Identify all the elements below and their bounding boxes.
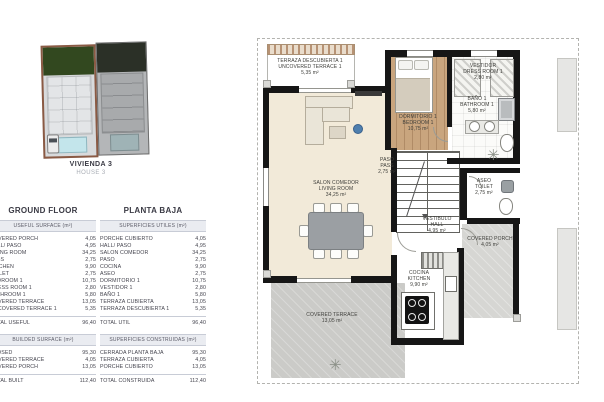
- table-row: CERRADA PLANTA BAJA95,30: [100, 350, 206, 357]
- row-label: BAÑO 1: [100, 292, 120, 299]
- toilet: [500, 134, 514, 152]
- column-marker: [347, 80, 355, 88]
- dining-chair: [330, 249, 342, 259]
- total-label: TOTAL CONSTRUIDA: [100, 377, 154, 386]
- row-value: 5,35: [85, 306, 96, 313]
- row-label: COVERED PORCH: [0, 364, 38, 371]
- pool-dim: [110, 134, 140, 151]
- table-row: BEDROOM 110,75: [0, 278, 96, 285]
- table-row: BATHROOM 15,80: [0, 292, 96, 299]
- plot-house3-highlighted: [41, 44, 99, 158]
- table-row: COVERED TERRACE4,05: [0, 357, 96, 364]
- room-area: 2,75 m²: [467, 190, 501, 196]
- row-label: COVERED TERRACE: [0, 299, 44, 306]
- plot-neighbor-dimmed: [96, 41, 150, 155]
- row-value: 10,75: [82, 278, 96, 285]
- column-marker: [263, 80, 271, 88]
- built-rows: CERRADA PLANTA BAJA95,30 TERRAZA CUBIERT…: [100, 350, 206, 371]
- row-value: 2,75: [195, 271, 206, 278]
- row-label: SALON COMEDOR: [100, 250, 148, 257]
- row-label: PASO: [100, 257, 115, 264]
- room-area: 34,25 m²: [296, 192, 376, 198]
- room-area: 9,90 m²: [397, 282, 441, 288]
- pillow: [414, 60, 429, 70]
- plant-icon: ✳: [329, 358, 342, 373]
- row-value: 5,80: [195, 292, 206, 299]
- row-value: 13,05: [192, 299, 206, 306]
- row-label: COVERED TERRACE: [0, 357, 44, 364]
- row-value: 2,75: [85, 271, 96, 278]
- row-value: 2,75: [85, 257, 96, 264]
- sink: [484, 121, 495, 132]
- row-value: 4,05: [85, 236, 96, 243]
- house-roofplan-dim: [100, 72, 145, 133]
- room-area: 2,75 m²: [365, 169, 409, 175]
- row-value: 13,05: [192, 364, 206, 371]
- useful-rows: PORCHE CUBIERTO4,05 HALL/ PASO4,95 SALON…: [100, 236, 206, 313]
- wall-segment: [513, 218, 519, 320]
- house-roofplan: [46, 76, 92, 136]
- built-rows: CLOSED95,30 COVERED TERRACE4,05 COVERED …: [0, 350, 96, 371]
- row-label: BEDROOM 1: [0, 278, 23, 285]
- row-value: 5,80: [85, 292, 96, 299]
- dining-chair: [313, 249, 325, 259]
- dining-table: [308, 212, 364, 250]
- table-row: DORMITORIO 110,75: [100, 278, 206, 285]
- dining-chair: [347, 249, 359, 259]
- divider: [100, 374, 206, 375]
- row-label: HALL/ PASO: [100, 243, 132, 250]
- ground-floor-table: GROUND FLOOR USEFUL SURFACE (m²) COVERED…: [0, 206, 96, 386]
- wall-segment: [385, 50, 520, 57]
- toilet: [499, 198, 513, 215]
- table-title: GROUND FLOOR: [0, 206, 96, 215]
- table-row: COCINA9,90: [100, 264, 206, 271]
- window: [407, 50, 433, 57]
- pergola-slats: [267, 44, 355, 55]
- row-value: 4,05: [195, 236, 206, 243]
- row-value: 9,90: [195, 264, 206, 271]
- total-value: 112,40: [80, 377, 96, 386]
- row-value: 34,25: [192, 250, 206, 257]
- window: [263, 168, 269, 206]
- row-value: 13,05: [82, 364, 96, 371]
- room-area: 13,05 m²: [292, 318, 372, 324]
- row-value: 4,95: [85, 243, 96, 250]
- caption-vivienda: VIVIENDA 3: [18, 161, 164, 169]
- row-value: 95,30: [192, 350, 206, 357]
- row-value: 5,35: [195, 306, 206, 313]
- room-label-hall: VESTIBULO HALL 4,95 m²: [413, 216, 461, 234]
- total-value: 96,40: [192, 319, 206, 328]
- terrace-sliding-door: [299, 88, 351, 93]
- row-label: TERRAZA DESCUBIERTA 1: [100, 306, 169, 313]
- useful-total: TOTAL UTIL96,40: [100, 319, 206, 328]
- coffee-table: [329, 126, 346, 139]
- pool: [56, 136, 87, 153]
- room-label-pass: PASO PASS 2,75 m²: [365, 157, 409, 175]
- table-row: PASO2,75: [100, 257, 206, 264]
- wall-segment: [460, 170, 467, 220]
- total-label: TOTAL USEFUL: [0, 319, 30, 328]
- row-label: CLOSED: [0, 350, 12, 357]
- row-label: COVERED PORCH: [0, 236, 38, 243]
- row-value: 4,95: [195, 243, 206, 250]
- section-header: SUPERFICIES CONSTRUIDAS (m²): [100, 334, 206, 346]
- shower: [498, 98, 515, 121]
- row-value: 4,05: [195, 357, 206, 364]
- wall-segment: [385, 50, 391, 150]
- room-area: 4,05 m²: [467, 242, 513, 248]
- room-label-uncovered-terrace: TERRAZA DESCUBIERTA 1 UNCOVERED TERRACE …: [270, 58, 350, 76]
- room-label-bathroom1: BAÑO 1 BATHROOM 1 5,80 m²: [455, 96, 499, 114]
- burner: [408, 313, 416, 321]
- table-row: TOILET2,75: [0, 271, 96, 278]
- kitchen-sink: [445, 276, 457, 292]
- floorplan-sheet: VIVIENDA 3 HOUSE 3 GROUND FLOOR USEFUL S…: [0, 0, 604, 402]
- blanket: [396, 78, 430, 111]
- burner: [418, 299, 426, 307]
- burner: [408, 299, 416, 307]
- section-header: USEFUL SURFACE (m²): [0, 220, 96, 232]
- row-value: 2,80: [85, 285, 96, 292]
- row-value: 9,90: [85, 264, 96, 271]
- table-row: COVERED PORCH13,05: [0, 364, 96, 371]
- table-row: VESTIDOR 12,80: [100, 285, 206, 292]
- room-label-covered-terrace: COVERED TERRACE 13,05 m²: [292, 312, 372, 324]
- room-label-living-room: SALON COMEDOR LIVING ROOM 34,25 m²: [296, 180, 376, 198]
- thumbnail-caption: VIVIENDA 3 HOUSE 3: [18, 161, 164, 177]
- table-title: PLANTA BAJA: [100, 206, 206, 215]
- table-row: CLOSED95,30: [0, 350, 96, 357]
- neighbor-wall-strip: [557, 58, 577, 132]
- plant-icon: ✳: [487, 148, 500, 163]
- planta-baja-table: PLANTA BAJA SUPERFICIES UTILES (m²) PORC…: [100, 206, 206, 386]
- washbasin: [501, 180, 514, 193]
- row-value: 10,75: [192, 278, 206, 285]
- table-row: LIVING ROOM34,25: [0, 250, 96, 257]
- table-row: HALL/ PASO4,95: [0, 243, 96, 250]
- row-label: TOILET: [0, 271, 9, 278]
- built-total: TOTAL CONSTRUIDA112,40: [100, 377, 206, 386]
- room-area: 5,35 m²: [270, 70, 350, 76]
- useful-total: TOTAL USEFUL96,40: [0, 319, 96, 328]
- wall-segment: [391, 255, 397, 345]
- row-label: PORCHE CUBIERTO: [100, 236, 153, 243]
- room-area: 2,80 m²: [453, 75, 513, 81]
- table-row: UNCOVERED TERRACE 15,35: [0, 306, 96, 313]
- room-label-bedroom1: DORMITORIO 1 BEDROOM 1 10,75 m²: [388, 114, 448, 132]
- table-row: PORCHE CUBIERTO13,05: [100, 364, 206, 371]
- row-label: LIVING ROOM: [0, 250, 26, 257]
- burner: [418, 313, 426, 321]
- total-value: 112,40: [190, 377, 206, 386]
- row-value: 2,75: [195, 257, 206, 264]
- room-label-covered-porch: COVERED PORCH 4,05 m²: [467, 236, 513, 248]
- row-label: PORCHE CUBIERTO: [100, 364, 153, 371]
- wall-segment: [447, 158, 520, 164]
- row-label: HALL/ PASO: [0, 243, 22, 250]
- total-label: TOTAL BUILT: [0, 377, 24, 386]
- pouf: [353, 124, 363, 134]
- floor-plan: ✳ ✳ TERRAZA DESCUBIERTA 1 UNCOVERED TERR…: [255, 30, 590, 388]
- divider: [0, 316, 96, 317]
- table-row: PORCHE CUBIERTO4,05: [100, 236, 206, 243]
- row-value: 13,05: [82, 299, 96, 306]
- row-label: DRESS ROOM 1: [0, 285, 32, 292]
- total-label: TOTAL UTIL: [100, 319, 130, 328]
- row-value: 34,25: [82, 250, 96, 257]
- row-label: ASEO: [100, 271, 115, 278]
- kitchen-counter: [443, 252, 459, 340]
- garden-area-dim: [97, 42, 147, 72]
- section-header: BUILDED SURFACE (m²): [0, 334, 96, 346]
- column-marker: [513, 314, 521, 322]
- tv-unit: [355, 91, 382, 96]
- table-row: TERRAZA DESCUBIERTA 15,35: [100, 306, 206, 313]
- useful-rows: COVERED PORCH4,05 HALL/ PASO4,95 LIVING …: [0, 236, 96, 313]
- row-label: VESTIDOR 1: [100, 285, 133, 292]
- row-value: 4,05: [85, 357, 96, 364]
- pillow: [398, 60, 413, 70]
- row-label: COCINA: [100, 264, 121, 271]
- room-area: 10,75 m²: [388, 126, 448, 132]
- table-row: KITCHEN9,90: [0, 264, 96, 271]
- divider: [0, 374, 96, 375]
- room-area: 5,80 m²: [455, 108, 499, 114]
- row-value: 2,80: [195, 285, 206, 292]
- table-row: ASEO2,75: [100, 271, 206, 278]
- column-marker: [263, 270, 271, 278]
- sink: [469, 121, 480, 132]
- row-label: CERRADA PLANTA BAJA: [100, 350, 164, 357]
- table-row: SALON COMEDOR34,25: [100, 250, 206, 257]
- table-row: BAÑO 15,80: [100, 292, 206, 299]
- divider: [100, 316, 206, 317]
- row-label: UNCOVERED TERRACE 1: [0, 306, 57, 313]
- built-total: TOTAL BUILT112,40: [0, 377, 96, 386]
- site-render-thumbnail: [40, 40, 146, 158]
- row-value: 95,30: [82, 350, 96, 357]
- car: [47, 134, 59, 153]
- room-label-kitchen: COCINA KITCHEN 9,90 m²: [397, 270, 441, 288]
- window: [471, 50, 497, 57]
- wall-segment: [460, 168, 520, 173]
- terrace-sliding-door: [297, 278, 351, 283]
- caption-house: HOUSE 3: [18, 169, 164, 177]
- table-row: COVERED TERRACE13,05: [0, 299, 96, 306]
- row-label: TERRAZA CUBIERTA: [100, 357, 154, 364]
- row-label: PASS: [0, 257, 4, 264]
- table-row: HALL/ PASO4,95: [100, 243, 206, 250]
- row-label: TERRAZA CUBIERTA: [100, 299, 154, 306]
- row-label: BATHROOM 1: [0, 292, 26, 299]
- dining-chair: [363, 225, 373, 237]
- room-area: 4,95 m²: [413, 228, 461, 234]
- room-label-toilet: ASEO TOILET 2,75 m²: [467, 178, 501, 196]
- neighbor-wall-strip: [557, 228, 577, 330]
- row-label: DORMITORIO 1: [100, 278, 140, 285]
- table-row: TERRAZA CUBIERTA4,05: [100, 357, 206, 364]
- section-header: SUPERFICIES UTILES (m²): [100, 220, 206, 232]
- total-value: 96,40: [82, 319, 96, 328]
- garden-area: [43, 46, 95, 76]
- sofa-seat: [322, 107, 350, 122]
- row-label: KITCHEN: [0, 264, 14, 271]
- table-row: DRESS ROOM 12,80: [0, 285, 96, 292]
- room-label-dressroom: VESTIDOR DRESS ROOM 1 2,80 m²: [453, 63, 513, 81]
- table-row: TERRAZA CUBIERTA13,05: [100, 299, 206, 306]
- table-row: PASS2,75: [0, 257, 96, 264]
- table-row: COVERED PORCH4,05: [0, 236, 96, 243]
